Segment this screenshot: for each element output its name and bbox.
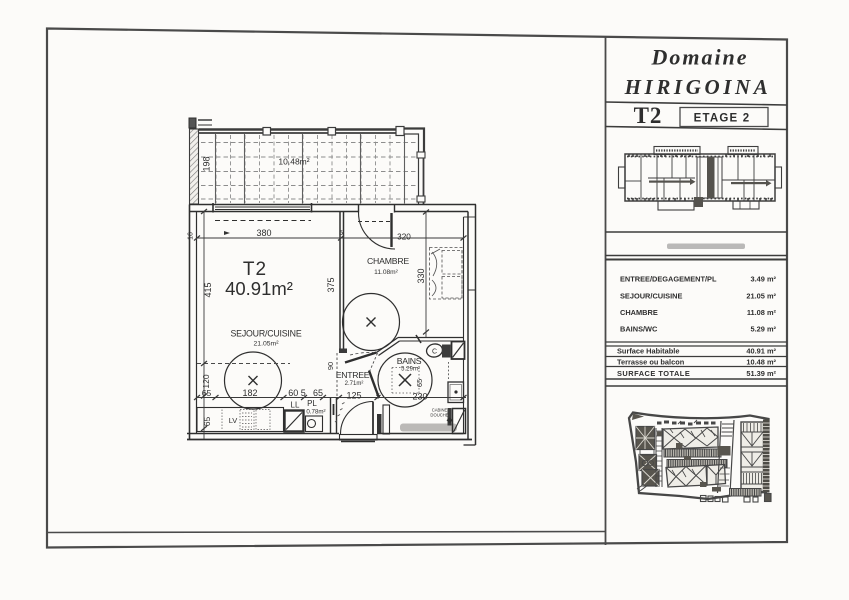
svg-text:375: 375 (326, 277, 336, 292)
svg-text:ENTREE: ENTREE (336, 370, 370, 380)
svg-text:BAINS/WC: BAINS/WC (620, 325, 658, 334)
svg-text:11.08 m²: 11.08 m² (747, 308, 777, 317)
svg-text:CHAMBRE: CHAMBRE (367, 256, 409, 266)
svg-text:65: 65 (202, 417, 212, 427)
svg-text:65: 65 (202, 388, 212, 398)
svg-text:SEJOUR/CUISINE: SEJOUR/CUISINE (620, 292, 682, 301)
svg-text:C: C (432, 349, 437, 356)
svg-text:415: 415 (203, 282, 213, 297)
svg-text:T2: T2 (634, 103, 663, 128)
svg-text:11.08m²: 11.08m² (374, 269, 399, 276)
svg-text:40.91 m²: 40.91 m² (746, 347, 776, 356)
svg-text:DOUCHE: DOUCHE (430, 413, 448, 418)
svg-text:LL: LL (291, 401, 300, 410)
svg-text:330: 330 (416, 268, 426, 283)
svg-text:16: 16 (188, 232, 195, 240)
svg-text:125: 125 (346, 391, 361, 401)
svg-text:3.49 m²: 3.49 m² (751, 275, 777, 284)
svg-text:Surface Habitable: Surface Habitable (617, 347, 679, 356)
svg-text:HIRIGOINA: HIRIGOINA (624, 75, 772, 99)
svg-text:ETAGE 2: ETAGE 2 (694, 113, 751, 125)
svg-text:0.78m²: 0.78m² (306, 409, 325, 416)
svg-text:230: 230 (412, 392, 427, 402)
svg-text:120: 120 (201, 374, 211, 388)
svg-text:ENTREE/DEGAGEMENT/PL: ENTREE/DEGAGEMENT/PL (620, 275, 717, 284)
svg-text:51.39 m²: 51.39 m² (746, 369, 776, 378)
svg-text:10.48 m²: 10.48 m² (746, 358, 776, 367)
svg-text:5: 5 (376, 392, 380, 401)
svg-text:182: 182 (242, 388, 257, 398)
svg-text:380: 380 (256, 228, 271, 238)
svg-text:PL: PL (307, 399, 317, 408)
svg-text:198: 198 (202, 156, 212, 171)
svg-text:Domaine: Domaine (650, 45, 748, 70)
svg-text:21.05 m²: 21.05 m² (746, 292, 776, 301)
svg-text:65: 65 (415, 379, 424, 387)
svg-text:90: 90 (326, 362, 335, 370)
svg-text:LV: LV (229, 416, 238, 425)
svg-text:CHAMBRE: CHAMBRE (620, 308, 658, 317)
svg-text:60 5: 60 5 (288, 388, 306, 398)
svg-text:5.29 m²: 5.29 m² (751, 325, 777, 334)
svg-text:10.48m²: 10.48m² (278, 157, 309, 167)
svg-text:65: 65 (313, 388, 323, 398)
svg-text:T2: T2 (243, 259, 267, 280)
svg-text:5: 5 (339, 230, 343, 237)
svg-text:SEJOUR/CUISINE: SEJOUR/CUISINE (230, 329, 301, 339)
svg-text:21.05m²: 21.05m² (254, 341, 280, 348)
svg-text:2.71m²: 2.71m² (345, 381, 364, 387)
svg-text:BAINS: BAINS (397, 356, 422, 366)
svg-text:40.91m²: 40.91m² (225, 278, 293, 299)
svg-text:SURFACE TOTALE: SURFACE TOTALE (617, 369, 690, 378)
svg-text:Terrasse ou balcon: Terrasse ou balcon (617, 358, 685, 367)
svg-text:320: 320 (397, 233, 411, 242)
